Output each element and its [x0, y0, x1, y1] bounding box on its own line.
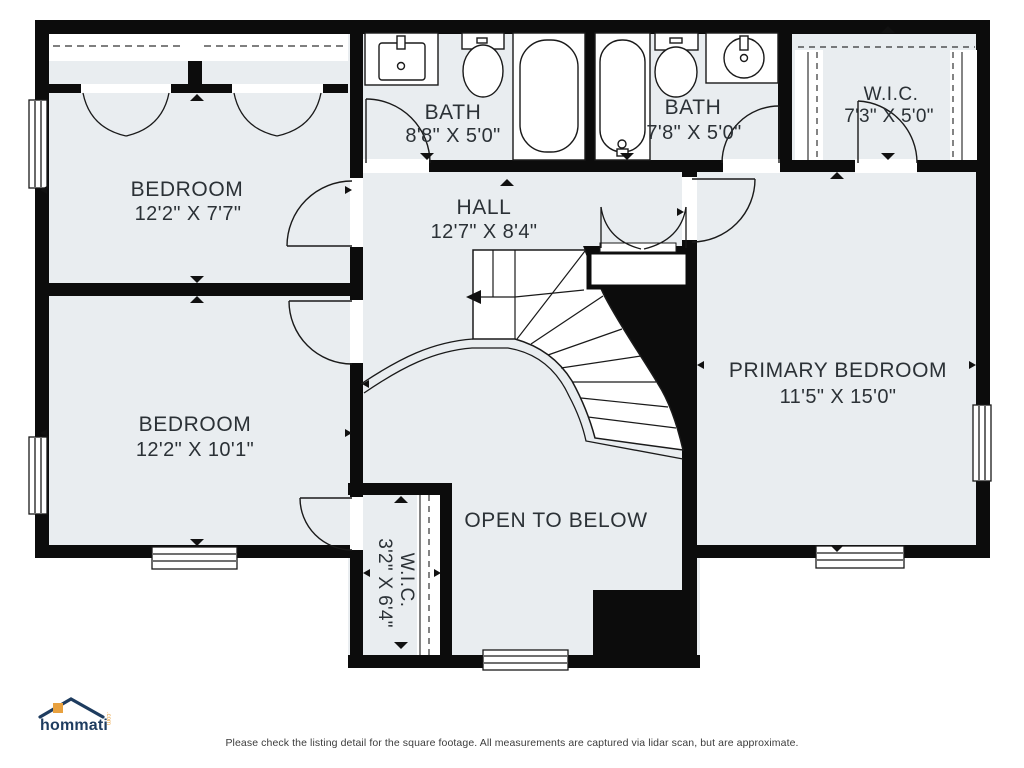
room-label-bedroom-bottom: BEDROOM: [139, 413, 252, 436]
room-label-primary: PRIMARY BEDROOM: [729, 359, 947, 382]
room-label-hall: HALL: [457, 196, 512, 219]
logo-window-icon: [53, 703, 63, 713]
room-dims-bath-left: 8'8" X 5'0": [405, 125, 500, 147]
room-dims-wic-top: 7'3" X 5'0": [844, 106, 934, 127]
tub: [600, 40, 645, 152]
room-dims-primary: 11'5" X 15'0": [780, 386, 897, 408]
logo-tld-text: .com: [105, 712, 111, 725]
room-label-bedroom-top: BEDROOM: [131, 178, 244, 201]
logo-brand-text: hommati: [40, 717, 108, 734]
room-dims-hall: 12'7" X 8'4": [431, 221, 538, 243]
hommati-logo: hommati .com: [40, 699, 111, 734]
faucet: [397, 36, 405, 49]
room-dims-bedroom-bottom: 12'2" X 10'1": [136, 439, 254, 461]
room-label-wic-top: W.I.C.: [864, 84, 919, 105]
drain: [741, 55, 748, 62]
floorplan-page: BEDROOM 12'2" X 7'7" BATH 8'8" X 5'0" BA…: [0, 0, 1024, 768]
window: [152, 547, 237, 569]
drain: [398, 63, 405, 70]
toilet-bowl: [463, 45, 503, 97]
toilet-bowl: [655, 47, 697, 97]
floorplan-drawing: BEDROOM 12'2" X 7'7" BATH 8'8" X 5'0" BA…: [0, 0, 1024, 768]
window: [973, 405, 991, 481]
flush-button: [670, 38, 682, 43]
open-to-below-label: OPEN TO BELOW: [464, 509, 647, 532]
window: [483, 650, 568, 670]
room-label-bath-left: BATH: [425, 101, 482, 124]
window: [816, 546, 904, 568]
faucet: [740, 36, 748, 50]
room-dims-bedroom-top: 12'2" X 7'7": [135, 203, 242, 225]
tub-faucet: [618, 140, 626, 148]
room-dims-bath-right: 7'8" X 5'0": [646, 122, 741, 144]
room-label-bath-right: BATH: [665, 96, 722, 119]
flush-button: [477, 38, 487, 43]
logo-roof-icon: [40, 699, 103, 717]
window: [29, 437, 47, 514]
tub: [520, 40, 578, 152]
window: [29, 100, 47, 188]
disclaimer-text: Please check the listing detail for the …: [225, 737, 798, 749]
